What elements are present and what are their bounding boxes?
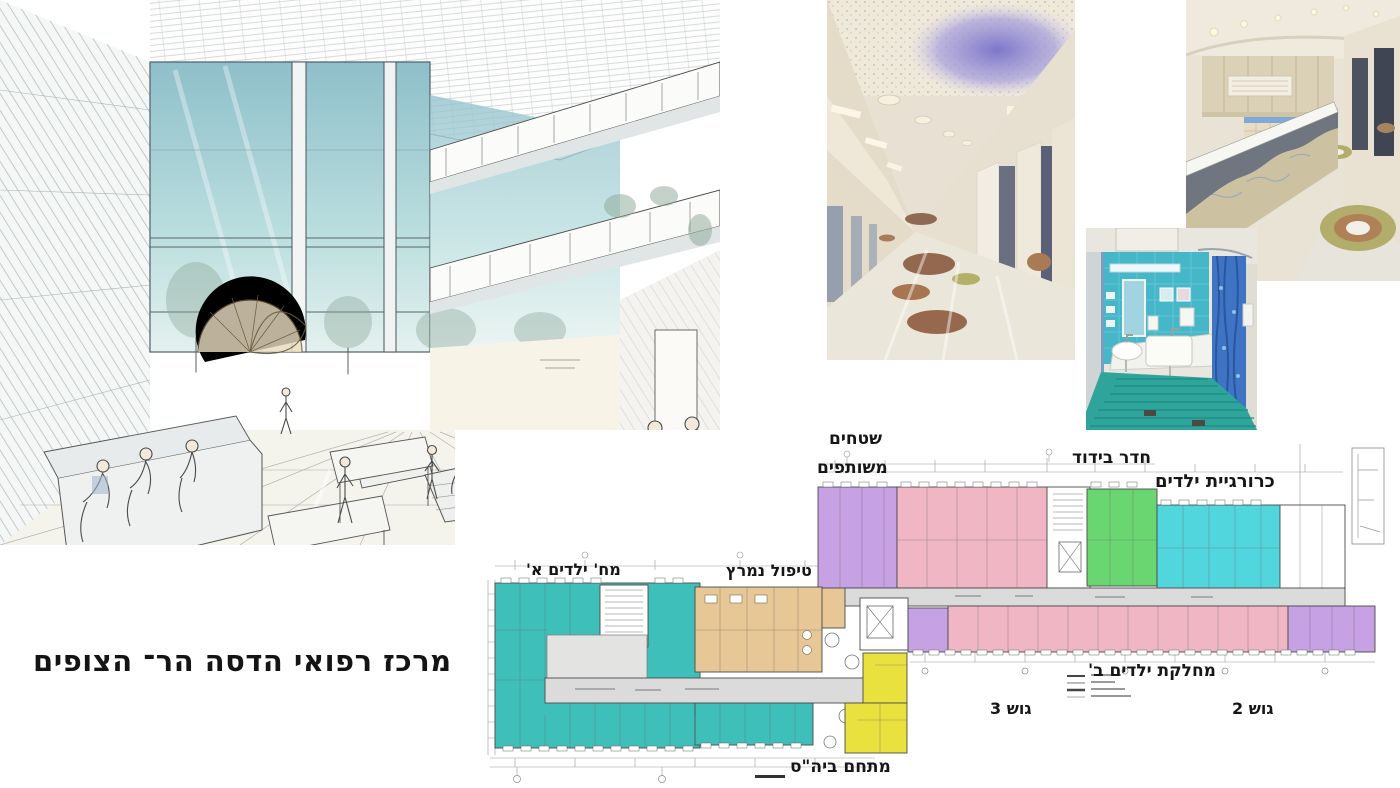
plan-zone-isolation-room	[1087, 489, 1157, 586]
section-detail-fragment	[1352, 448, 1384, 544]
label-shared-areas-line1: שטחים	[829, 431, 882, 449]
plan-zone-school-lower	[845, 703, 907, 753]
paper-towel-dispenser	[1180, 308, 1194, 326]
bathroom-photo	[1086, 228, 1257, 445]
plan-central-lobby	[547, 635, 647, 680]
corridor-photo	[827, 0, 1075, 360]
presentation-slide: { "slide": { "title": "מרכז רפואי הדסה ה…	[0, 0, 1400, 788]
plan-stair-core	[1047, 487, 1090, 588]
slide-title: מרכז רפואי הדסה הר־ הצופים	[33, 646, 452, 676]
plan-zone-school-upper	[863, 653, 907, 703]
label-block-3: גוש 3	[990, 701, 1031, 718]
label-children-ward-b: מחלקת ילדים ב'	[1088, 663, 1216, 681]
label-school-compound: מתחם ביה"ס	[790, 759, 891, 777]
plan-corridor-lower	[545, 678, 880, 703]
label-intensive-care: טיפול נמרץ	[726, 563, 812, 580]
label-shared-areas-line2: משותפים	[817, 460, 888, 478]
label-isolation-room: חדר בידוד	[1072, 450, 1151, 468]
mirror	[1123, 280, 1145, 336]
plan-zone-ward-rooms-upper	[897, 487, 1047, 588]
fluorescent-light	[1110, 264, 1180, 272]
label-children-ward-a: מח' ילדים א'	[526, 562, 621, 579]
label-block-2: גוש 2	[1232, 701, 1273, 718]
soap-dispenser	[1148, 316, 1158, 330]
plan-zone-shared-areas	[818, 487, 897, 588]
plan-zone-pediatric-surgery	[1157, 505, 1280, 589]
label-pediatric-surgery: כרורגיית ילדים	[1155, 473, 1275, 492]
plan-zone-ward-b	[948, 606, 1288, 652]
